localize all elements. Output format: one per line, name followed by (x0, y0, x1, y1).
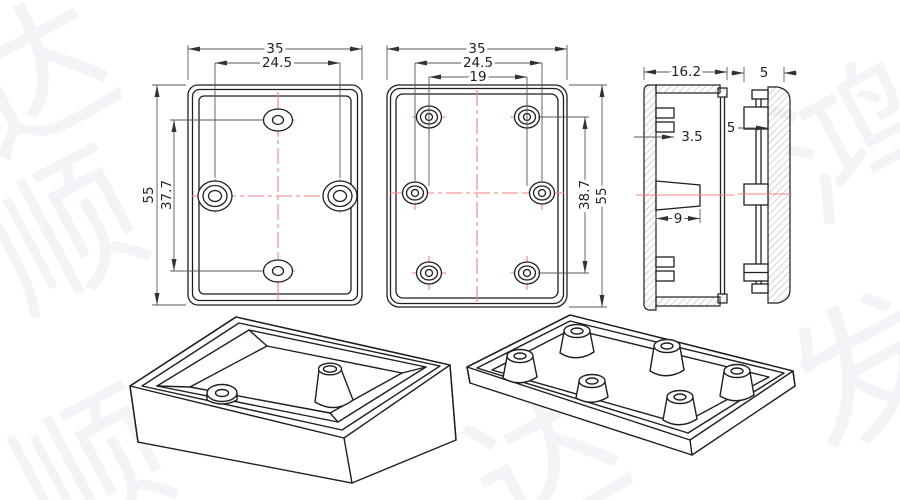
cone-boss (663, 391, 697, 425)
dim-cover-boss-label: 5 (727, 120, 736, 136)
cover-top-view: 35 24.5 19 38.7 55 (387, 41, 610, 307)
boss-hole (515, 262, 540, 284)
side-rib (656, 271, 674, 281)
dim-section-depth-label: 16.2 (671, 64, 701, 80)
section-left-wall (644, 85, 656, 310)
side-rib (656, 108, 674, 118)
dim-base-hole-span-label: 24.5 (262, 55, 292, 71)
side-rib (656, 122, 674, 132)
dim-cover-outer-span-label: 19 (469, 69, 486, 85)
dim-rib-offset-label: 3.5 (681, 129, 702, 145)
section-top-wall (656, 85, 720, 93)
cone-boss (503, 350, 537, 383)
boss-hole (403, 182, 428, 204)
section-bottom-wall (656, 297, 720, 306)
dim-cover-depth-label: 5 (760, 65, 769, 81)
section-top-lip (718, 88, 727, 97)
cone-boss (720, 365, 754, 401)
screw-hole (264, 260, 293, 282)
screw-hole (264, 109, 293, 131)
dim-boss-width-label: 9 (674, 211, 683, 227)
cone-boss (576, 375, 608, 403)
boss-hole (323, 181, 357, 211)
cone-boss (650, 340, 684, 376)
cover-boss-section (744, 107, 768, 129)
boss-hole (417, 262, 442, 284)
cone-boss (560, 325, 594, 358)
boss-hole (198, 181, 232, 211)
cover-top-lip (752, 90, 768, 99)
drawing-canvas: 顺 达 顺 鸿 发 达 (0, 0, 900, 500)
small-boss (207, 385, 237, 405)
box-silhouette (130, 317, 456, 483)
cover-plate-section (768, 87, 790, 303)
side-rib (656, 257, 674, 267)
dim-base-hole-span-v-label: 37.7 (159, 180, 175, 210)
section-bottom-lip (718, 294, 727, 303)
base-top-view: 35 24.5 55 37.7 (141, 41, 362, 305)
base-section-view: 16.2 3.5 9 (634, 64, 734, 310)
base-isometric-view (130, 317, 456, 483)
boss-hole (530, 182, 555, 204)
dim-cover-height-label: 55 (594, 187, 610, 204)
dim-cover-hole-span-v-label: 38.7 (577, 180, 593, 210)
cover-bottom-lip (752, 284, 768, 293)
dim-base-height-label: 55 (141, 186, 157, 203)
